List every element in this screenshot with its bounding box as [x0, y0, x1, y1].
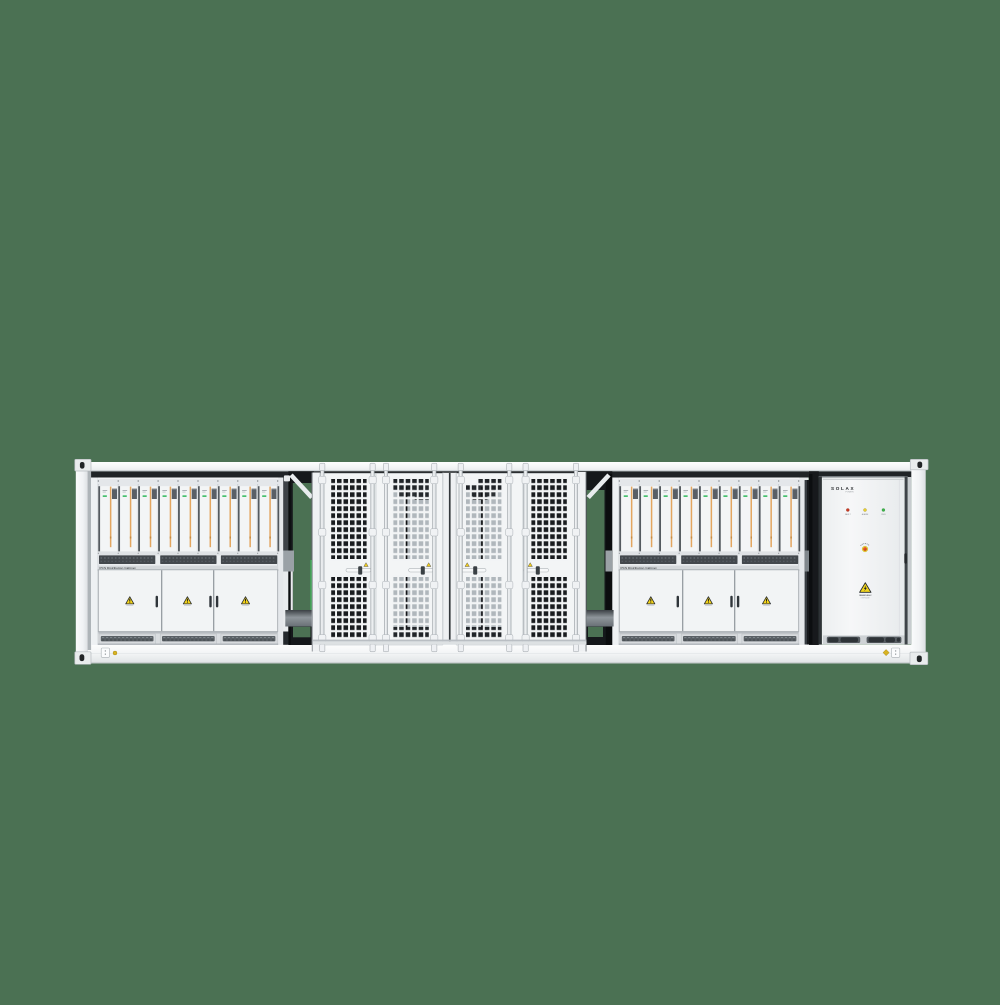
svg-text:ALARM: ALARM [862, 513, 869, 516]
svg-text:PCS Distribution Cabinet: PCS Distribution Cabinet [621, 566, 657, 570]
svg-text:SOLAX: SOLAX [831, 486, 855, 491]
svg-text:RUN: RUN [881, 514, 886, 516]
svg-text:POWER: POWER [846, 491, 855, 493]
svg-text:PCS Distribution Cabinet: PCS Distribution Cabinet [100, 566, 136, 570]
svg-text:KEEP AWAY: KEEP AWAY [861, 596, 871, 599]
svg-text:FAULT: FAULT [845, 513, 852, 516]
